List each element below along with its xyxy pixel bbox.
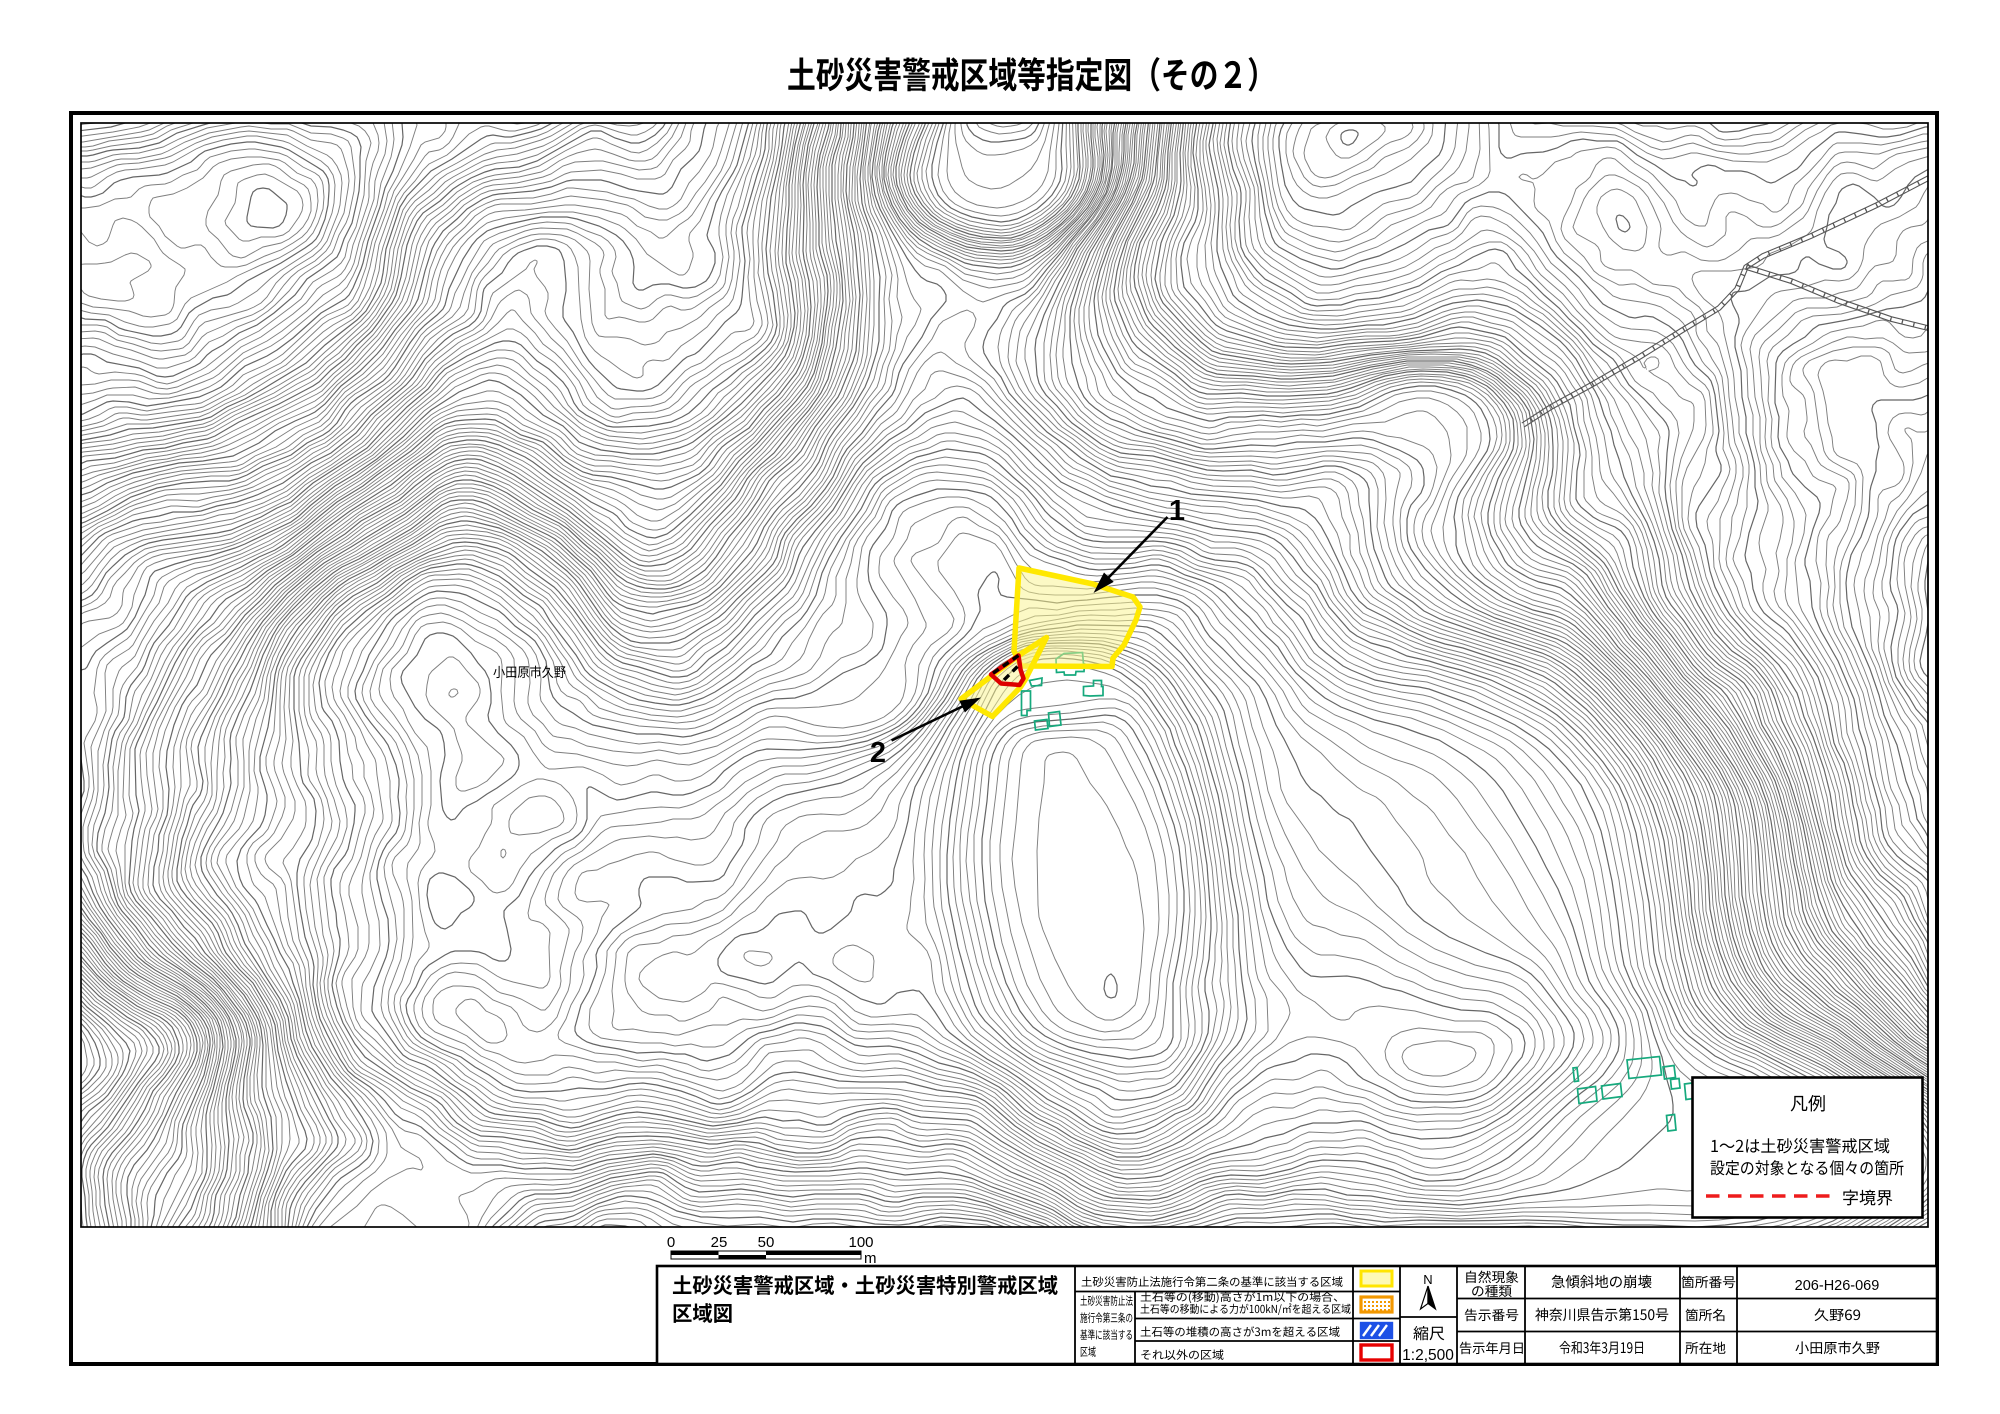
svg-text:m: m (864, 1250, 877, 1267)
svg-text:50: 50 (758, 1234, 775, 1251)
svg-text:1:2,500: 1:2,500 (1402, 1347, 1454, 1364)
svg-text:206-H26-069: 206-H26-069 (1795, 1278, 1880, 1294)
svg-text:25: 25 (711, 1234, 728, 1251)
svg-text:100: 100 (848, 1234, 873, 1251)
svg-text:0: 0 (667, 1234, 675, 1251)
svg-text:2: 2 (870, 737, 886, 769)
svg-text:N: N (1423, 1272, 1432, 1287)
svg-text:1: 1 (1169, 495, 1185, 527)
